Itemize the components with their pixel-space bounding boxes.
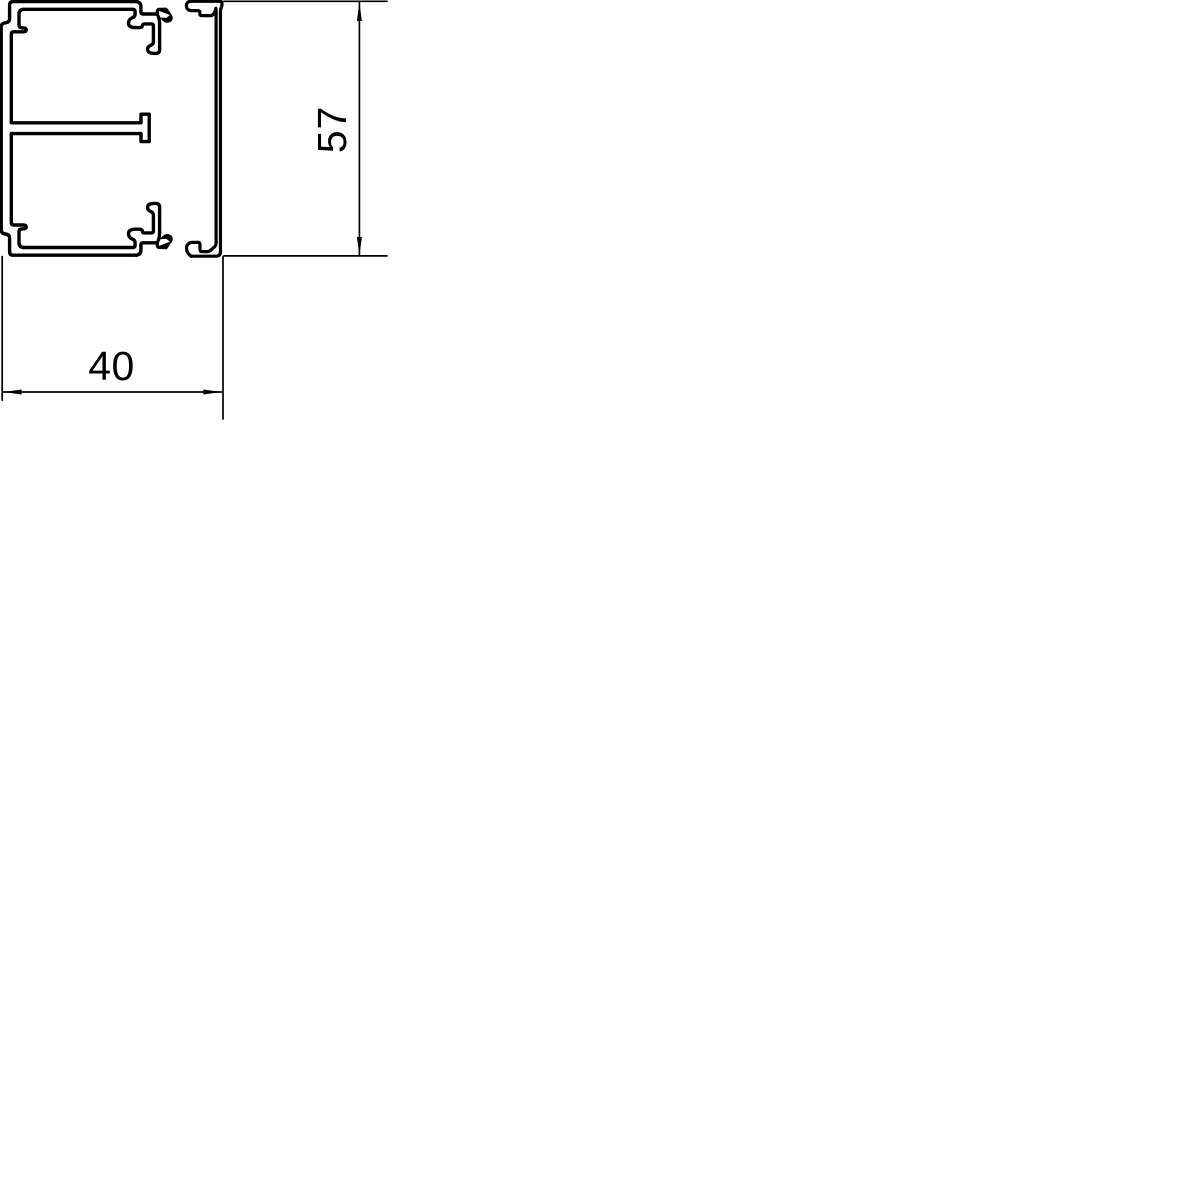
svg-text:40: 40: [88, 343, 135, 389]
svg-text:57: 57: [309, 106, 355, 154]
